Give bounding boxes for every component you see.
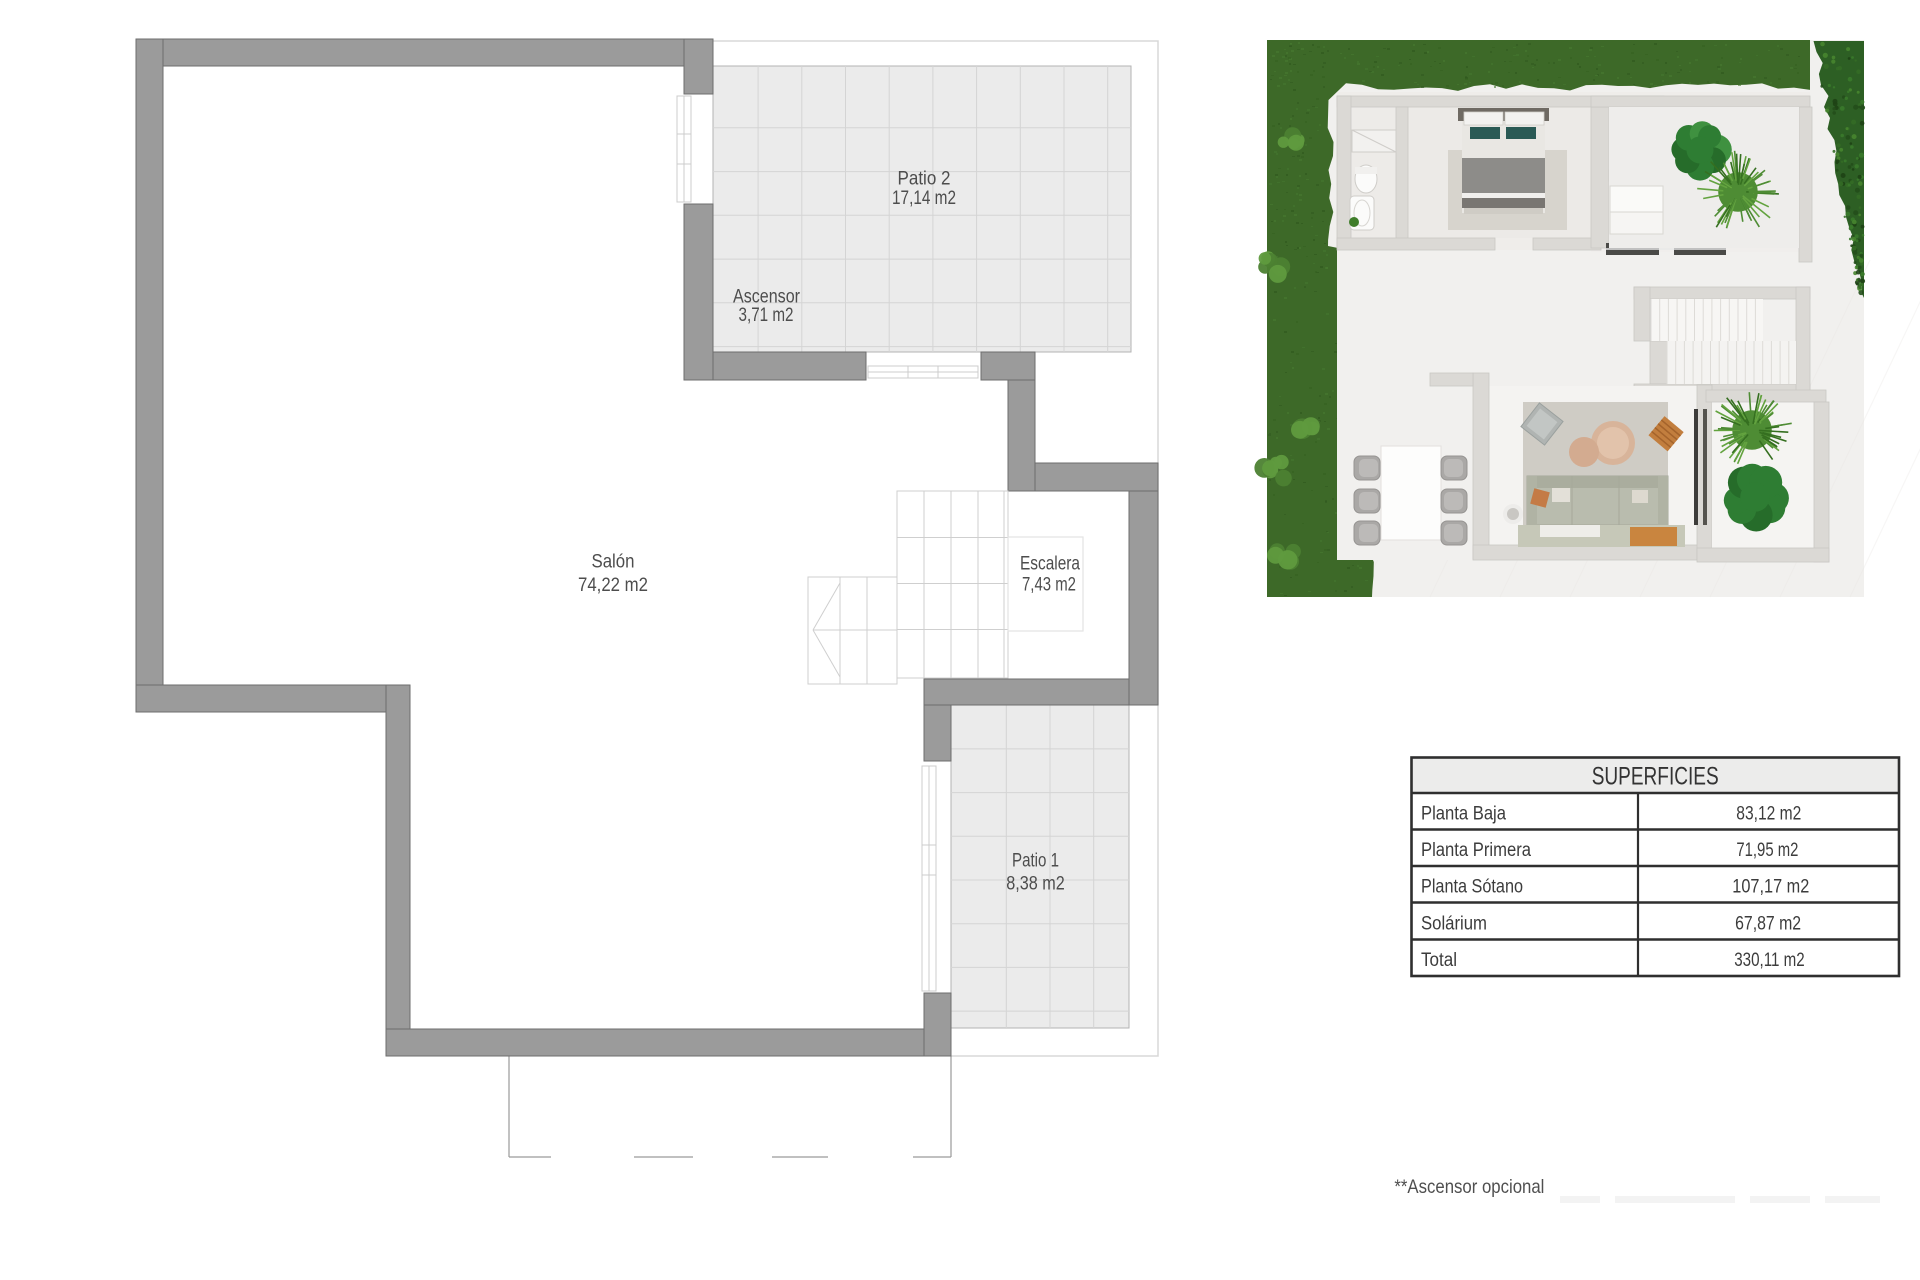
svg-text:Planta Baja: Planta Baja [1421,804,1506,825]
svg-text:**Ascensor opcional: **Ascensor opcional [1394,1176,1544,1198]
svg-text:71,95 m2: 71,95 m2 [1736,840,1798,861]
svg-text:Solárium: Solárium [1421,914,1487,935]
svg-text:Planta Sótano: Planta Sótano [1421,877,1523,898]
svg-text:17,14 m2: 17,14 m2 [892,188,956,209]
svg-text:Salón: Salón [592,552,635,573]
svg-text:74,22 m2: 74,22 m2 [578,575,648,596]
svg-text:Patio 2: Patio 2 [898,169,951,190]
svg-text:8,38 m2: 8,38 m2 [1006,874,1065,895]
svg-text:Planta Primera: Planta Primera [1421,840,1531,861]
svg-text:330,11 m2: 330,11 m2 [1734,950,1805,971]
svg-text:7,43 m2: 7,43 m2 [1022,575,1076,596]
svg-text:67,87 m2: 67,87 m2 [1735,914,1801,935]
svg-text:Patio 1: Patio 1 [1012,851,1059,872]
svg-text:Escalera: Escalera [1020,554,1080,575]
svg-text:SUPERFICIES: SUPERFICIES [1592,763,1719,791]
svg-text:83,12 m2: 83,12 m2 [1736,804,1801,825]
svg-text:3,71 m2: 3,71 m2 [739,305,794,326]
svg-text:107,17 m2: 107,17 m2 [1732,877,1809,898]
svg-text:Total: Total [1421,950,1457,971]
